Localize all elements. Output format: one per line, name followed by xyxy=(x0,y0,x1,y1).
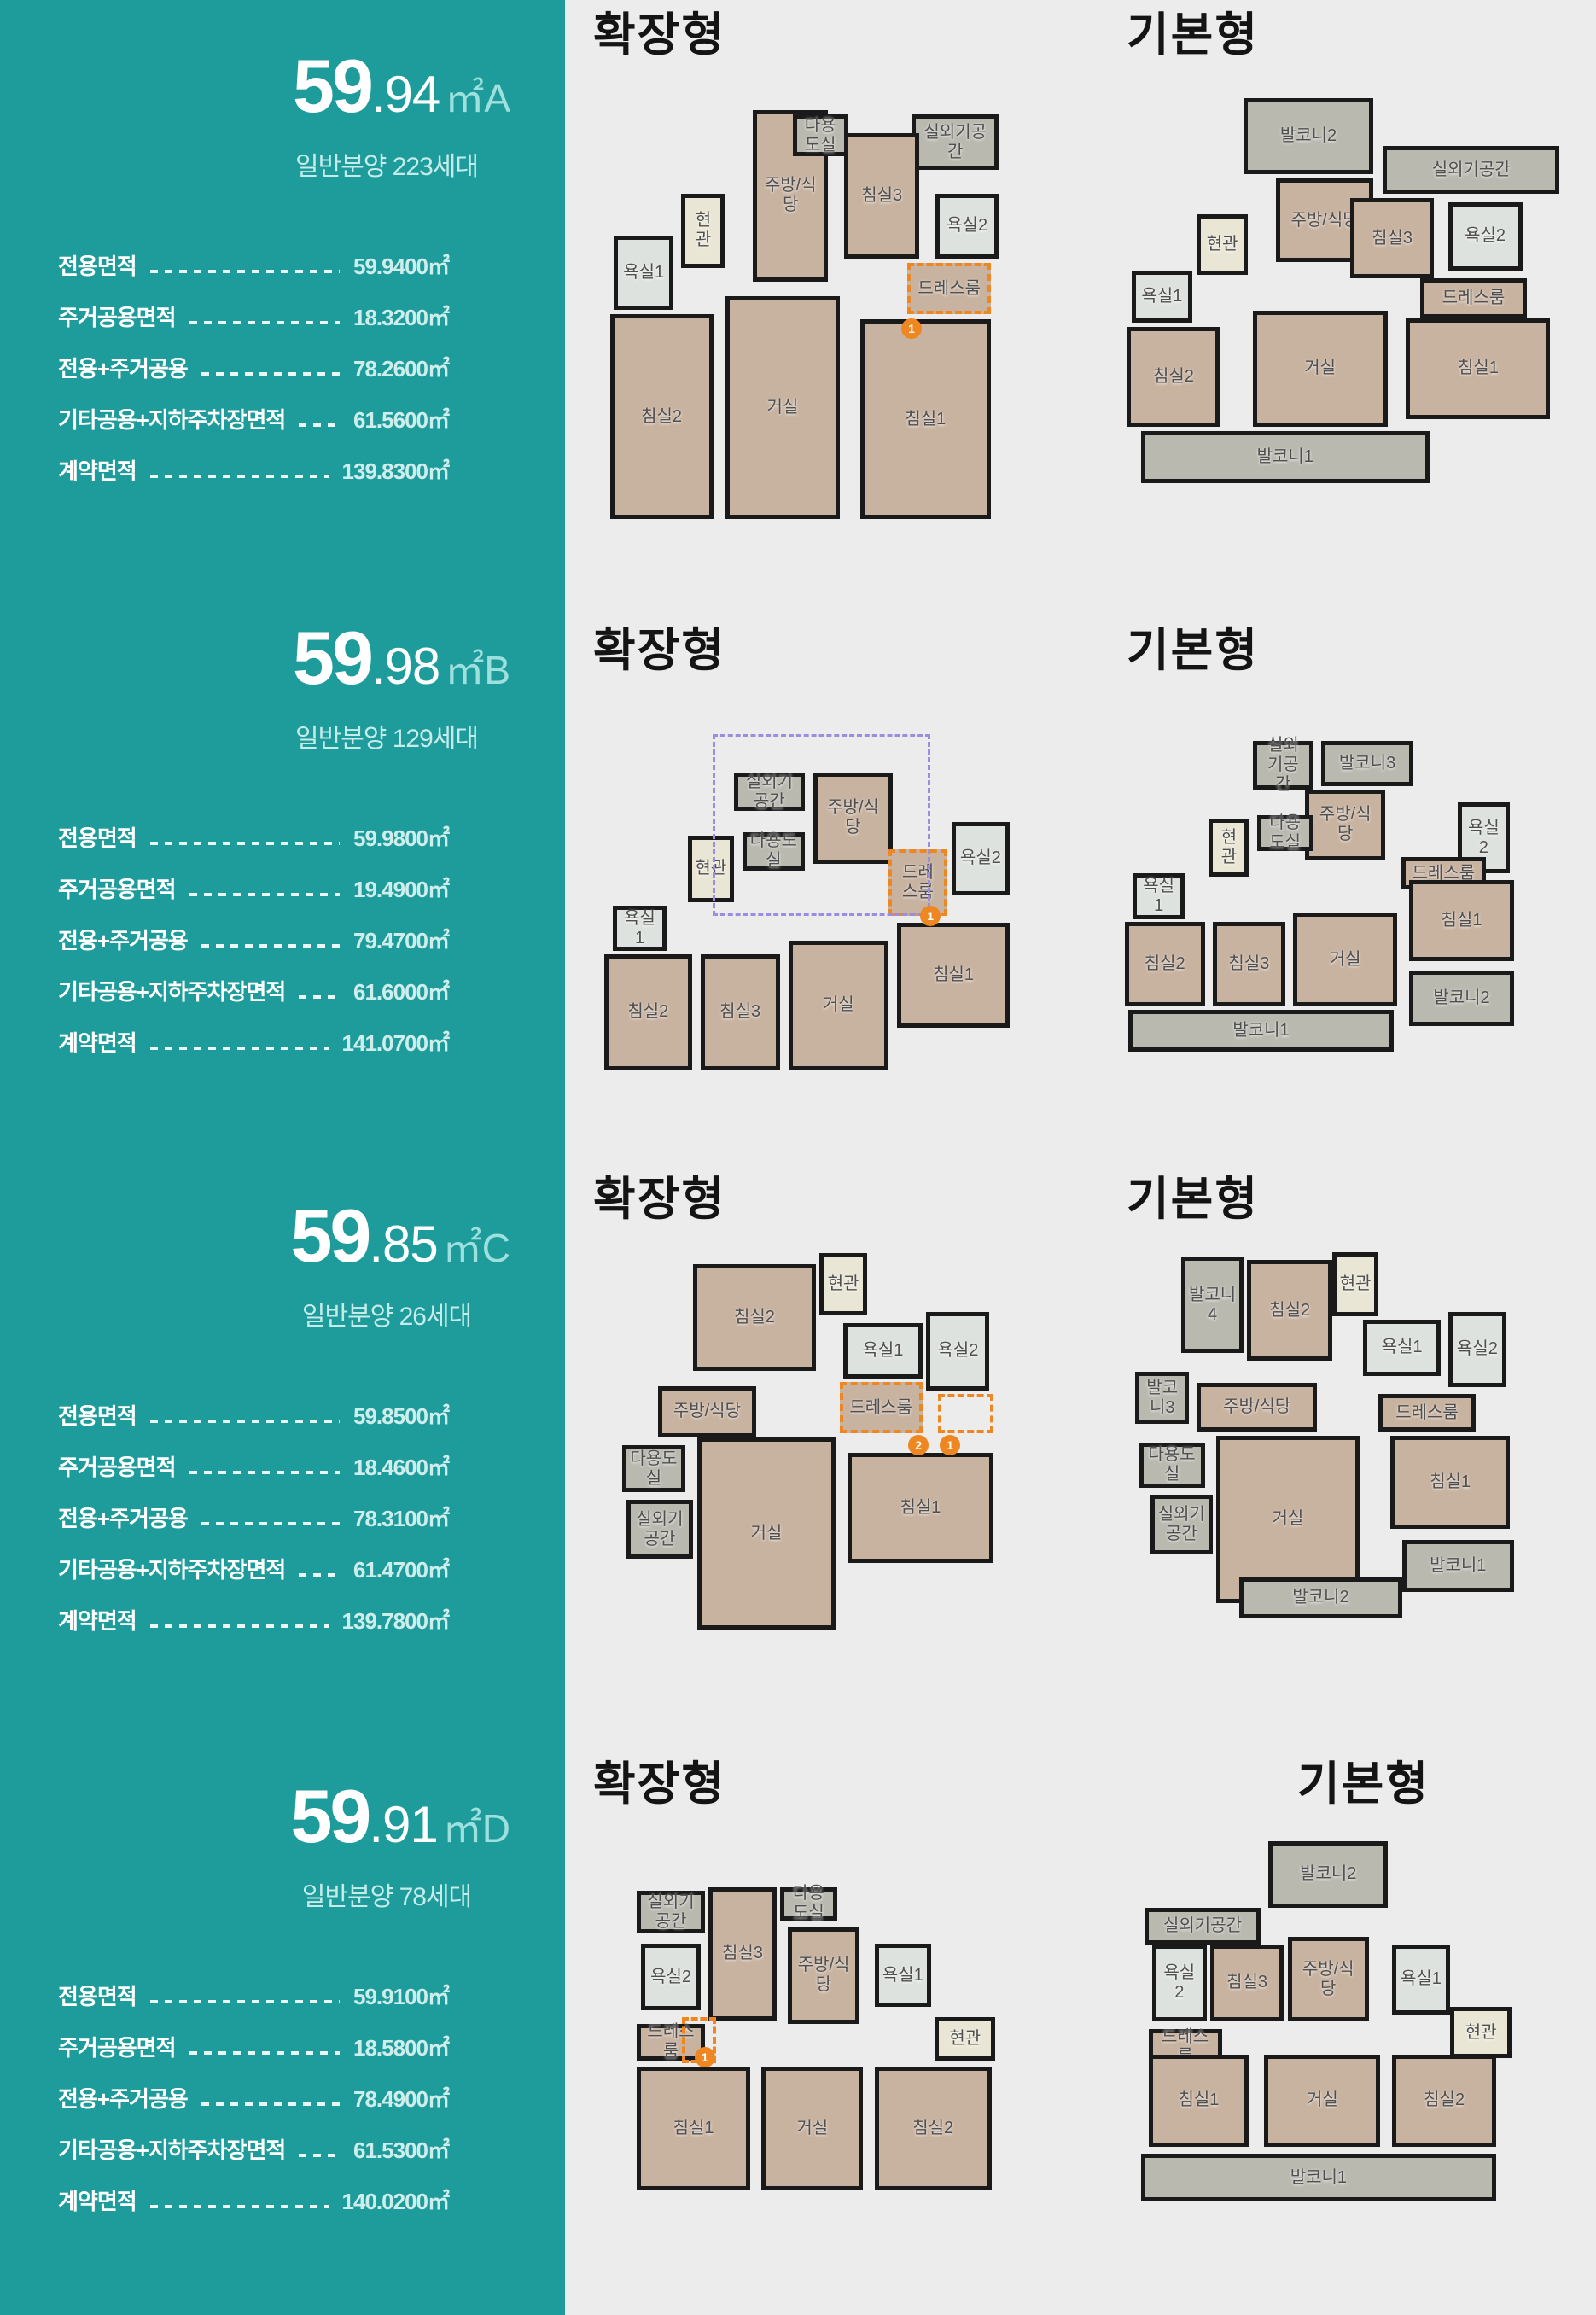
dotted-leader xyxy=(299,995,340,999)
room-label: 거실 xyxy=(765,398,801,417)
room-label: 다용도실 xyxy=(1144,1445,1201,1484)
spec-value: 78.3100㎡ xyxy=(353,1502,449,1533)
room-발코니2: 발코니2 xyxy=(1409,971,1513,1026)
room-다용도실: 다용도실 xyxy=(1257,815,1313,851)
spec-label: 주거공용면적 xyxy=(58,300,176,332)
unit-d-area-dec: .91 xyxy=(369,1795,437,1854)
spec-value: 61.5600㎡ xyxy=(353,403,449,434)
room-침실2: 침실2 xyxy=(875,2067,992,2190)
expansion-outline xyxy=(713,734,930,916)
unit-c-title: 59.85㎡C xyxy=(290,1192,510,1279)
room-침실1: 침실1 xyxy=(897,923,1010,1028)
room-거실: 거실 xyxy=(697,1437,836,1630)
spec-row: 전용면적59.9800㎡ xyxy=(58,811,449,862)
spec-value: 18.3200㎡ xyxy=(353,300,449,332)
unit-a-area-suffix: ㎡A xyxy=(445,67,510,124)
dotted-leader xyxy=(150,842,340,845)
room-label: 발코니3 xyxy=(1139,1379,1185,1418)
dotted-leader xyxy=(299,2154,340,2157)
room-label: 욕실2 xyxy=(1462,226,1508,246)
floorplan-a-extended: 주방/식당다용도실실외기공간침실3욕실2드레스룸현관욕실1침실2거실침실11 xyxy=(606,73,1003,538)
spec-label: 기타공용+지하주차장면적 xyxy=(58,975,285,1006)
spec-label: 계약면적 xyxy=(58,1026,137,1058)
room-침실3: 침실3 xyxy=(708,1887,777,2021)
room-label: 주방/식당 xyxy=(792,1956,855,1995)
spec-value: 61.6000㎡ xyxy=(353,975,449,1006)
room-label: 발코니1 xyxy=(1230,1021,1291,1041)
room-label: 침실1 xyxy=(1455,359,1501,378)
spec-row: 계약면적139.7800㎡ xyxy=(58,1594,449,1645)
spec-label: 전용+주거공용 xyxy=(58,352,188,383)
room-label: 발코니4 xyxy=(1185,1286,1238,1325)
room-label: 욕실1 xyxy=(880,1966,926,1986)
room-label: 욕실2 xyxy=(648,1968,694,1987)
spec-row: 전용+주거공용78.4900㎡ xyxy=(58,2072,449,2123)
dotted-leader xyxy=(150,1624,329,1628)
floorplan-b-basic: 실외기공간발코니3주방/식당다용도실현관욕실1욕실2드레스룸침실2침실3거실침실… xyxy=(1121,734,1522,1058)
room-침실3: 침실3 xyxy=(1213,922,1285,1006)
spec-value: 78.2600㎡ xyxy=(353,352,449,383)
room-침실1: 침실1 xyxy=(1149,2055,1249,2147)
floorplan-a-basic: 발코니2실외기공간현관주방/식당침실3욕실2욕실1드레스룸침실2거실침실1발코니… xyxy=(1122,94,1587,495)
room-욕실2: 욕실2 xyxy=(641,1944,702,2010)
room-주방/식당: 주방/식당 xyxy=(658,1386,757,1437)
unit-b-supply: 일반분양 129세대 xyxy=(263,717,510,755)
room-현관: 현관 xyxy=(1450,2007,1512,2058)
room-침실1: 침실1 xyxy=(1390,1436,1510,1529)
option-marker-1: 1 xyxy=(940,1435,960,1455)
dotted-leader xyxy=(201,2102,340,2106)
room-label: 발코니2 xyxy=(1290,1588,1351,1607)
room-욕실2: 욕실2 xyxy=(926,1312,989,1391)
dotted-leader xyxy=(189,2051,340,2055)
room-label: 침실1 xyxy=(1175,2090,1221,2110)
unit-c-area-suffix: ㎡C xyxy=(443,1217,510,1274)
room-label: 침실2 xyxy=(1421,2090,1467,2110)
room-label: 침실3 xyxy=(859,186,905,206)
room-label: 침실3 xyxy=(719,1944,766,1963)
spec-label: 주거공용면적 xyxy=(58,1450,176,1482)
spec-label: 전용면적 xyxy=(58,821,137,853)
room-다용도실: 다용도실 xyxy=(622,1445,685,1492)
room-label: 침실2 xyxy=(1142,954,1188,974)
spec-label: 기타공용+지하주차장면적 xyxy=(58,403,285,434)
room-label: 욕실2 xyxy=(1462,819,1506,858)
spec-row: 주거공용면적18.3200㎡ xyxy=(58,290,449,341)
spec-value: 141.0700㎡ xyxy=(342,1026,449,1058)
dotted-leader xyxy=(201,1522,340,1525)
room-label: 실외기공간 xyxy=(1257,736,1309,795)
floorplan-d-extended: 실외기공간침실3다용도실주방/식당욕실2드레스룸욕실1현관침실1거실침실21 xyxy=(626,1881,1003,2213)
spec-row: 계약면적139.8300㎡ xyxy=(58,444,449,495)
unit-d-supply: 일반분양 78세대 xyxy=(263,1875,510,1913)
spec-label: 전용+주거공용 xyxy=(58,1502,188,1533)
room-침실2: 침실2 xyxy=(1247,1260,1332,1361)
room-label: 주방/식당 xyxy=(1309,805,1381,844)
spec-row: 전용+주거공용78.3100㎡ xyxy=(58,1491,449,1542)
option-marker-1: 1 xyxy=(920,906,941,926)
room-label: 실외기공간 xyxy=(916,123,994,162)
spec-value: 140.0200㎡ xyxy=(342,2184,449,2216)
room-다용도실: 다용도실 xyxy=(1139,1443,1205,1487)
floorplan-d-basic: 발코니2실외기공간침실3주방/식당욕실2욕실1드레스룸현관침실1거실침실2발코니… xyxy=(1137,1841,1523,2209)
plan-type-extended-d: 확장형 xyxy=(593,1761,725,1807)
room-label: 드레스룸 xyxy=(847,1398,915,1418)
plan-type-extended-c: 확장형 xyxy=(593,1176,725,1222)
spec-label: 계약면적 xyxy=(58,2184,137,2216)
unit-a-area-dec: .94 xyxy=(371,65,440,124)
room-label: 욕실1 xyxy=(1139,287,1185,306)
room-욕실2: 욕실2 xyxy=(1448,1312,1506,1386)
room-발코니2: 발코니2 xyxy=(1239,1577,1401,1618)
spec-label: 전용면적 xyxy=(58,1980,137,2011)
room-침실2: 침실2 xyxy=(1125,922,1205,1006)
plan-type-extended-a: 확장형 xyxy=(593,12,725,58)
room-현관: 현관 xyxy=(1197,214,1248,275)
room-label: 다용도실 xyxy=(797,116,844,155)
spec-value: 18.4600㎡ xyxy=(353,1450,449,1482)
spec-value: 139.7800㎡ xyxy=(342,1604,449,1636)
page: { "colors":{ "sidebar_teal":"#1e9c9b", "… xyxy=(0,0,1596,2315)
room-label: 현관 xyxy=(685,211,720,250)
room-욕실1: 욕실1 xyxy=(875,1944,931,2007)
unit-c-supply: 일반분양 26세대 xyxy=(263,1295,510,1332)
room-label: 현관 xyxy=(1463,2023,1500,2043)
room-label: 다용도실 xyxy=(784,1884,832,1923)
room-침실3: 침실3 xyxy=(844,133,919,259)
unit-b-specs: 전용면적59.9800㎡ 주거공용면적19.4900㎡ 전용+주거공용79.47… xyxy=(58,811,449,1067)
room-label: 다용도실 xyxy=(626,1449,681,1489)
dotted-leader xyxy=(150,270,340,273)
room-욕실2: 욕실2 xyxy=(952,822,1011,895)
dotted-leader xyxy=(150,1420,340,1423)
floorplan-c-extended: 침실2현관욕실1욕실2드레스룸주방/식당다용도실실외기공간거실침실121 xyxy=(610,1249,1005,1641)
room-침실3: 침실3 xyxy=(1210,1945,1284,2022)
room-거실: 거실 xyxy=(761,2067,863,2190)
room-label: 드레스룸 xyxy=(915,279,983,299)
room-label: 침실2 xyxy=(625,1002,671,1022)
room-label: 욕실1 xyxy=(617,909,663,948)
spec-label: 기타공용+지하주차장면적 xyxy=(58,1553,285,1584)
room-현관: 현관 xyxy=(819,1253,867,1316)
spec-label: 주거공용면적 xyxy=(58,872,176,904)
room-label: 침실1 xyxy=(897,1498,943,1518)
room-label: 주방/식당 xyxy=(1220,1397,1293,1417)
room-label: 현관 xyxy=(1337,1274,1374,1294)
room-label: 발코니2 xyxy=(1430,988,1492,1008)
room-label: 욕실1 xyxy=(1398,1969,1444,1989)
room-실외기공간: 실외기공간 xyxy=(912,114,999,170)
room-거실: 거실 xyxy=(1253,311,1388,427)
room-label: 실외기공간 xyxy=(641,1892,701,1932)
plan-type-basic-c: 기본형 xyxy=(1127,1176,1259,1222)
room-침실1: 침실1 xyxy=(860,319,991,519)
spec-row: 전용+주거공용79.4700㎡ xyxy=(58,913,449,965)
room-침실3: 침실3 xyxy=(1350,198,1434,278)
room-실외기공간: 실외기공간 xyxy=(637,1891,705,1934)
room-욕실1: 욕실1 xyxy=(1132,271,1192,323)
spec-value: 59.9400㎡ xyxy=(353,249,449,281)
room-현관: 현관 xyxy=(1209,819,1249,877)
spec-label: 전용+주거공용 xyxy=(58,2082,188,2114)
room-욕실1: 욕실1 xyxy=(1392,1945,1450,2015)
room-label: 발코니2 xyxy=(1278,126,1339,146)
room-현관: 현관 xyxy=(1332,1252,1378,1315)
room-label: 실외기공간 xyxy=(1155,1505,1208,1544)
dashed-annotation xyxy=(938,1394,993,1433)
room-침실2: 침실2 xyxy=(604,954,692,1070)
room-label: 거실 xyxy=(820,995,857,1015)
spec-row: 기타공용+지하주차장면적61.4700㎡ xyxy=(58,1542,449,1594)
room-label: 드레스룸 xyxy=(1440,289,1508,308)
unit-a-title: 59.94㎡A xyxy=(293,43,510,129)
room-label: 침실1 xyxy=(1439,911,1485,930)
room-현관: 현관 xyxy=(681,194,725,268)
unit-a-area-int: 59 xyxy=(293,43,371,129)
room-드레스룸: 드레스룸 xyxy=(1420,278,1527,318)
room-label: 침실3 xyxy=(1226,954,1272,974)
room-욕실1: 욕실1 xyxy=(1133,873,1185,918)
spec-row: 기타공용+지하주차장면적61.5600㎡ xyxy=(58,393,449,444)
room-욕실2: 욕실2 xyxy=(935,194,999,259)
plan-type-extended-b: 확장형 xyxy=(593,627,725,674)
room-욕실1: 욕실1 xyxy=(613,906,667,951)
unit-b-area-suffix: ㎡B xyxy=(445,639,510,696)
spec-row: 기타공용+지하주차장면적61.5300㎡ xyxy=(58,2123,449,2174)
sidebar: 59.94㎡A 일반분양 223세대 전용면적59.9400㎡ 주거공용면적18… xyxy=(0,0,565,2315)
spec-label: 전용면적 xyxy=(58,249,137,281)
room-label: 욕실1 xyxy=(859,1341,906,1361)
room-드레스룸: 드레스룸 xyxy=(1378,1394,1475,1432)
room-label: 침실2 xyxy=(910,2119,956,2138)
spec-row: 기타공용+지하주차장면적61.6000㎡ xyxy=(58,965,449,1016)
spec-value: 59.9100㎡ xyxy=(353,1980,449,2011)
room-label: 욕실2 xyxy=(935,1341,981,1361)
spec-row: 전용면적59.9400㎡ xyxy=(58,239,449,290)
spec-label: 주거공용면적 xyxy=(58,2031,176,2062)
room-침실2: 침실2 xyxy=(1127,327,1220,428)
floorplan-b-extended: 실외기공간주방/식당다용도실현관드레스룸욕실2욕실1침실2침실3거실침실11 xyxy=(600,734,1018,1084)
room-실외기공간: 실외기공간 xyxy=(1145,1908,1261,1945)
room-label: 실외기공간 xyxy=(1161,1916,1244,1936)
spec-row: 계약면적140.0200㎡ xyxy=(58,2174,449,2225)
dotted-leader xyxy=(189,1471,340,1474)
dotted-leader xyxy=(150,475,329,478)
room-label: 드레스룸 xyxy=(1393,1403,1461,1423)
room-실외기공간: 실외기공간 xyxy=(1150,1495,1212,1554)
dotted-leader xyxy=(299,423,340,427)
dotted-leader xyxy=(201,372,340,376)
unit-a-supply: 일반분양 223세대 xyxy=(263,145,510,183)
unit-b-area-int: 59 xyxy=(293,615,371,701)
room-드레스룸: 드레스룸 xyxy=(907,263,991,314)
unit-summary-a: 59.94㎡A 일반분양 223세대 전용면적59.9400㎡ 주거공용면적18… xyxy=(0,43,565,521)
spec-label: 전용+주거공용 xyxy=(58,924,188,955)
spec-row: 전용면적59.8500㎡ xyxy=(58,1389,449,1440)
room-label: 침실3 xyxy=(717,1002,763,1022)
room-발코니1: 발코니1 xyxy=(1141,431,1430,483)
unit-b-title: 59.98㎡B xyxy=(293,615,510,701)
unit-b-area-dec: .98 xyxy=(371,637,440,696)
room-label: 현관 xyxy=(947,2029,983,2049)
room-실외기공간: 실외기공간 xyxy=(1383,146,1559,194)
room-거실: 거실 xyxy=(1293,913,1397,1006)
room-발코니3: 발코니3 xyxy=(1135,1372,1189,1424)
room-label: 침실1 xyxy=(671,2119,717,2138)
spec-label: 계약면적 xyxy=(58,1604,137,1636)
spec-row: 주거공용면적19.4900㎡ xyxy=(58,862,449,913)
room-label: 주방/식당 xyxy=(671,1402,743,1421)
spec-label: 기타공용+지하주차장면적 xyxy=(58,2133,285,2165)
room-실외기공간: 실외기공간 xyxy=(1253,741,1313,790)
room-label: 현관 xyxy=(1213,828,1244,867)
room-발코니2: 발코니2 xyxy=(1244,98,1374,174)
dotted-leader xyxy=(150,2000,340,2003)
room-label: 욕실1 xyxy=(1379,1338,1425,1357)
room-침실1: 침실1 xyxy=(637,2067,750,2190)
unit-summary-b: 59.98㎡B 일반분양 129세대 전용면적59.9800㎡ 주거공용면적19… xyxy=(0,615,565,1093)
room-거실: 거실 xyxy=(789,941,889,1070)
room-label: 침실1 xyxy=(930,965,976,985)
room-침실3: 침실3 xyxy=(701,954,780,1070)
room-label: 거실 xyxy=(748,1524,784,1543)
room-주방/식당: 주방/식당 xyxy=(1197,1383,1316,1432)
room-다용도실: 다용도실 xyxy=(793,114,848,156)
unit-c-area-dec: .85 xyxy=(369,1215,437,1274)
unit-summary-d: 59.91㎡D 일반분양 78세대 전용면적59.9100㎡ 주거공용면적18.… xyxy=(0,1773,565,2251)
room-label: 발코니2 xyxy=(1297,1864,1359,1884)
room-label: 거실 xyxy=(1270,1509,1307,1529)
unit-d-area-int: 59 xyxy=(290,1773,369,1859)
room-현관: 현관 xyxy=(935,2017,995,2061)
room-주방/식당: 주방/식당 xyxy=(788,1927,859,2024)
room-발코니2: 발코니2 xyxy=(1268,1841,1388,1908)
room-label: 발코니1 xyxy=(1427,1556,1488,1576)
room-욕실2: 욕실2 xyxy=(1448,202,1523,271)
room-label: 침실3 xyxy=(1224,1973,1270,1992)
room-label: 다용도실 xyxy=(1261,813,1309,853)
room-label: 주방/식당 xyxy=(757,176,824,215)
spec-value: 61.4700㎡ xyxy=(353,1553,449,1584)
dotted-leader xyxy=(189,321,340,324)
spec-value: 19.4900㎡ xyxy=(353,872,449,904)
plan-type-basic-a: 기본형 xyxy=(1127,12,1259,58)
room-label: 욕실1 xyxy=(620,263,667,283)
room-침실2: 침실2 xyxy=(693,1264,816,1370)
room-욕실1: 욕실1 xyxy=(1363,1320,1441,1376)
spec-value: 59.9800㎡ xyxy=(353,821,449,853)
dotted-leader xyxy=(150,1047,329,1050)
room-label: 실외기공간 xyxy=(631,1510,690,1549)
unit-summary-c: 59.85㎡C 일반분양 26세대 전용면적59.8500㎡ 주거공용면적18.… xyxy=(0,1192,565,1671)
spec-value: 78.4900㎡ xyxy=(353,2082,449,2114)
room-주방/식당: 주방/식당 xyxy=(1305,790,1385,861)
room-욕실1: 욕실1 xyxy=(843,1323,923,1378)
dotted-leader xyxy=(201,944,340,948)
spec-value: 18.5800㎡ xyxy=(353,2031,449,2062)
room-label: 욕실1 xyxy=(1137,877,1180,916)
unit-d-specs: 전용면적59.9100㎡ 주거공용면적18.5800㎡ 전용+주거공용78.49… xyxy=(58,1969,449,2225)
spec-value: 79.4700㎡ xyxy=(353,924,449,955)
spec-label: 계약면적 xyxy=(58,454,137,486)
room-드레스룸: 드레스룸 xyxy=(840,1382,923,1433)
room-label: 거실 xyxy=(1327,950,1364,970)
dotted-leader xyxy=(150,2205,329,2208)
room-발코니4: 발코니4 xyxy=(1181,1257,1243,1354)
room-label: 발코니1 xyxy=(1288,2168,1349,2188)
room-침실2: 침실2 xyxy=(1392,2055,1496,2147)
room-label: 욕실2 xyxy=(1454,1339,1500,1359)
room-욕실1: 욕실1 xyxy=(614,236,673,310)
spec-label: 전용면적 xyxy=(58,1399,137,1431)
room-label: 침실3 xyxy=(1369,229,1415,248)
spec-row: 전용+주거공용78.2600㎡ xyxy=(58,341,449,393)
unit-d-title: 59.91㎡D xyxy=(290,1773,510,1859)
unit-c-area-int: 59 xyxy=(290,1192,369,1279)
room-label: 거실 xyxy=(1302,359,1338,378)
room-label: 발코니1 xyxy=(1255,447,1316,467)
room-label: 거실 xyxy=(1304,2090,1341,2110)
room-침실1: 침실1 xyxy=(1409,880,1513,961)
spec-value: 59.8500㎡ xyxy=(353,1399,449,1431)
spec-row: 계약면적141.0700㎡ xyxy=(58,1016,449,1067)
dotted-leader xyxy=(299,1573,340,1577)
room-발코니1: 발코니1 xyxy=(1402,1540,1514,1592)
room-주방/식당: 주방/식당 xyxy=(1288,1937,1369,2021)
room-실외기공간: 실외기공간 xyxy=(626,1500,694,1559)
spec-value: 139.8300㎡ xyxy=(342,454,449,486)
option-marker-1: 1 xyxy=(695,2047,715,2067)
room-label: 침실2 xyxy=(1150,367,1197,387)
plan-type-basic-d: 기본형 xyxy=(1297,1761,1430,1807)
room-label: 실외기공간 xyxy=(1430,160,1513,180)
room-label: 침실2 xyxy=(731,1308,778,1327)
room-label: 침실2 xyxy=(1267,1301,1313,1321)
room-label: 침실1 xyxy=(1427,1472,1473,1492)
unit-a-specs: 전용면적59.9400㎡ 주거공용면적18.3200㎡ 전용+주거공용78.26… xyxy=(58,239,449,495)
spec-value: 61.5300㎡ xyxy=(353,2133,449,2165)
spec-row: 전용면적59.9100㎡ xyxy=(58,1969,449,2021)
room-침실1: 침실1 xyxy=(1406,318,1550,419)
room-label: 현관 xyxy=(1204,235,1241,254)
room-발코니1: 발코니1 xyxy=(1141,2154,1497,2201)
spec-row: 주거공용면적18.4600㎡ xyxy=(58,1440,449,1491)
room-label: 욕실2 xyxy=(958,848,1004,868)
room-침실2: 침실2 xyxy=(610,314,714,519)
room-label: 주방/식당 xyxy=(1292,1960,1365,1999)
room-label: 침실1 xyxy=(902,410,948,429)
room-label: 침실2 xyxy=(638,407,684,427)
room-다용도실: 다용도실 xyxy=(780,1887,836,1921)
room-욕실2: 욕실2 xyxy=(1152,1945,1206,2022)
unit-c-specs: 전용면적59.8500㎡ 주거공용면적18.4600㎡ 전용+주거공용78.31… xyxy=(58,1389,449,1645)
room-침실1: 침실1 xyxy=(848,1453,993,1563)
room-거실: 거실 xyxy=(725,296,841,520)
room-label: 발코니3 xyxy=(1337,754,1398,773)
room-label: 욕실2 xyxy=(944,216,990,236)
room-label: 거실 xyxy=(794,2119,830,2138)
room-발코니3: 발코니3 xyxy=(1321,741,1413,786)
room-거실: 거실 xyxy=(1264,2055,1380,2147)
room-발코니1: 발코니1 xyxy=(1128,1010,1393,1052)
floorplan-c-basic: 발코니4침실2현관욕실1욕실2발코니3주방/식당드레스룸다용도실실외기공간거실침… xyxy=(1135,1249,1522,1622)
room-label: 욕실2 xyxy=(1156,1963,1202,2003)
unit-d-area-suffix: ㎡D xyxy=(443,1798,510,1854)
dotted-leader xyxy=(189,893,340,896)
option-marker-1: 1 xyxy=(901,318,922,339)
spec-row: 주거공용면적18.5800㎡ xyxy=(58,2021,449,2072)
option-marker-2: 2 xyxy=(908,1435,929,1455)
